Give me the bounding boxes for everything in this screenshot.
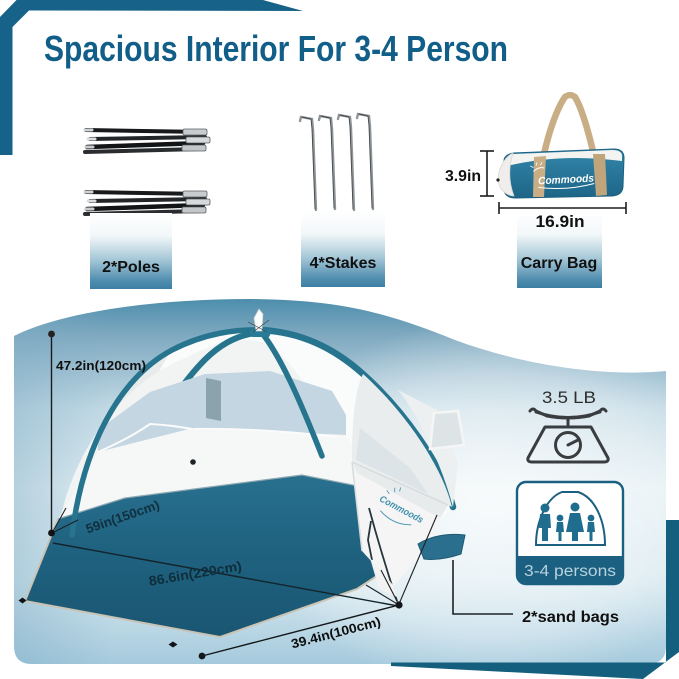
svg-text:3-4 persons: 3-4 persons [524, 563, 616, 580]
svg-text:Carry Bag: Carry Bag [521, 255, 597, 272]
svg-text:47.2in(120cm): 47.2in(120cm) [56, 358, 146, 373]
svg-text:Spacious Interior For 3-4 Pers: Spacious Interior For 3-4 Person [44, 28, 508, 69]
svg-text:3.5 LB: 3.5 LB [542, 389, 596, 407]
svg-text:16.9in: 16.9in [536, 213, 585, 231]
svg-text:4*Stakes: 4*Stakes [310, 255, 377, 272]
svg-text:2*sand bags: 2*sand bags [522, 609, 619, 626]
svg-text:2*Poles: 2*Poles [102, 259, 160, 276]
svg-text:3.9in: 3.9in [445, 168, 481, 185]
